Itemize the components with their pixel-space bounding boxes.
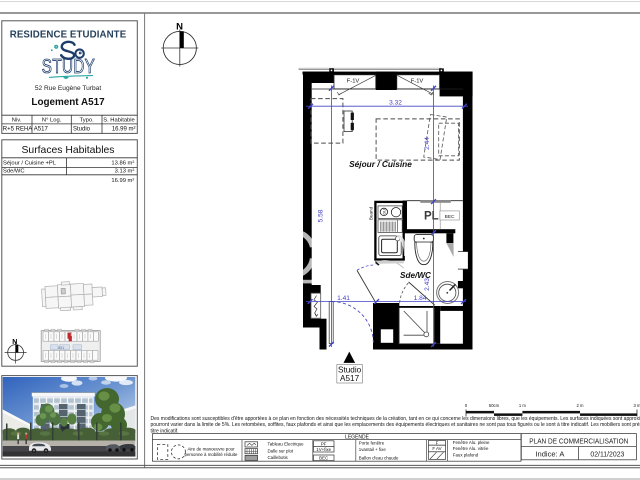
svg-text:F AV: F AV [432,446,441,451]
svg-text:3 m: 3 m [634,403,640,408]
svg-text:16.99 m²: 16.99 m² [112,127,136,133]
svg-text:2.43: 2.43 [424,278,431,291]
svg-text:Faux plafond: Faux plafond [453,453,479,458]
svg-text:02/11/2023: 02/11/2023 [590,449,624,458]
svg-text:Niv.: Niv. [12,118,22,124]
svg-text:S. Habitable: S. Habitable [103,118,135,124]
svg-text:13.86 m²: 13.86 m² [111,161,134,167]
svg-text:3.13 m²: 3.13 m² [115,169,135,175]
svg-text:BEC: BEC [445,214,455,220]
svg-text:2 m: 2 m [577,403,584,408]
svg-text:Surfaces Habitables: Surfaces Habitables [22,145,115,156]
svg-text:N° Log.: N° Log. [42,118,62,124]
svg-text:1.41: 1.41 [337,295,350,302]
svg-text:A517: A517 [34,127,49,133]
svg-text:Séjour / Cuisine +PL: Séjour / Cuisine +PL [3,161,57,167]
svg-text:PL: PL [424,211,439,223]
svg-text:Studio: Studio [73,127,91,133]
svg-text:PLAN DE COMMERCIALISATION: PLAN DE COMMERCIALISATION [529,436,628,445]
svg-text:1.84: 1.84 [414,295,427,302]
svg-text:3.32: 3.32 [389,100,402,107]
svg-text:Studio: Studio [338,365,362,374]
svg-text:Des modifications sont suscept: Des modifications sont susceptibles d'êt… [151,416,640,422]
svg-text:N: N [12,339,17,346]
svg-text:1 m: 1 m [519,403,526,408]
svg-text:F: F [436,440,439,445]
svg-text:PF: PF [321,441,327,446]
svg-text:Caillebotis: Caillebotis [268,455,289,460]
svg-text:LEGENDE: LEGENDE [345,434,370,440]
svg-text:A517: A517 [340,374,360,383]
svg-text:N: N [176,22,183,33]
svg-text:Buand: Buand [368,206,373,220]
svg-text:Logement A517: Logement A517 [31,97,105,108]
svg-text:STUDY: STUDY [42,55,95,78]
svg-text:Fenêtre Alu. vitrée: Fenêtre Alu. vitrée [453,446,489,451]
svg-text:Tableau Electrique: Tableau Electrique [268,442,305,447]
svg-text:1V+fixe: 1V+fixe [316,447,331,452]
svg-text:personne à mobilité réduite: personne à mobilité réduite [185,452,239,457]
svg-text:50cm: 50cm [489,403,500,408]
svg-text:2.44: 2.44 [424,137,431,150]
svg-text:RESIDENCE ETUDIANTE: RESIDENCE ETUDIANTE [10,29,127,40]
svg-text:16.99 m²: 16.99 m² [111,178,134,184]
svg-text:52 Rue Eugène Turbat: 52 Rue Eugène Turbat [35,85,102,92]
svg-text:pourront varier dans la limite: pourront varier dans la limite de 5%. Le… [151,422,640,428]
svg-text:R+5 REHA: R+5 REHA [3,127,33,133]
svg-text:1vantail + fixe: 1vantail + fixe [359,447,387,452]
svg-text:Sde/WC: Sde/WC [3,169,25,175]
svg-text:Ballon d'eau chaude: Ballon d'eau chaude [359,456,399,461]
svg-text:Aire de manoeuvre pour: Aire de manoeuvre pour [187,446,235,451]
svg-text:F-1V: F-1V [347,79,360,85]
svg-text:GU: GU [382,209,386,215]
svg-text:Indice: A: Indice: A [535,449,564,458]
svg-text:Dalle sur plot: Dalle sur plot [268,448,294,453]
svg-text:Typo.: Typo. [80,118,95,124]
svg-text:A51: A51 [58,346,64,350]
svg-text:BEC: BEC [319,456,328,461]
svg-text:Porte fenêtre: Porte fenêtre [359,441,385,446]
svg-text:5.58: 5.58 [318,209,325,222]
svg-text:Fenêtre Alu. pleine: Fenêtre Alu. pleine [453,440,490,445]
